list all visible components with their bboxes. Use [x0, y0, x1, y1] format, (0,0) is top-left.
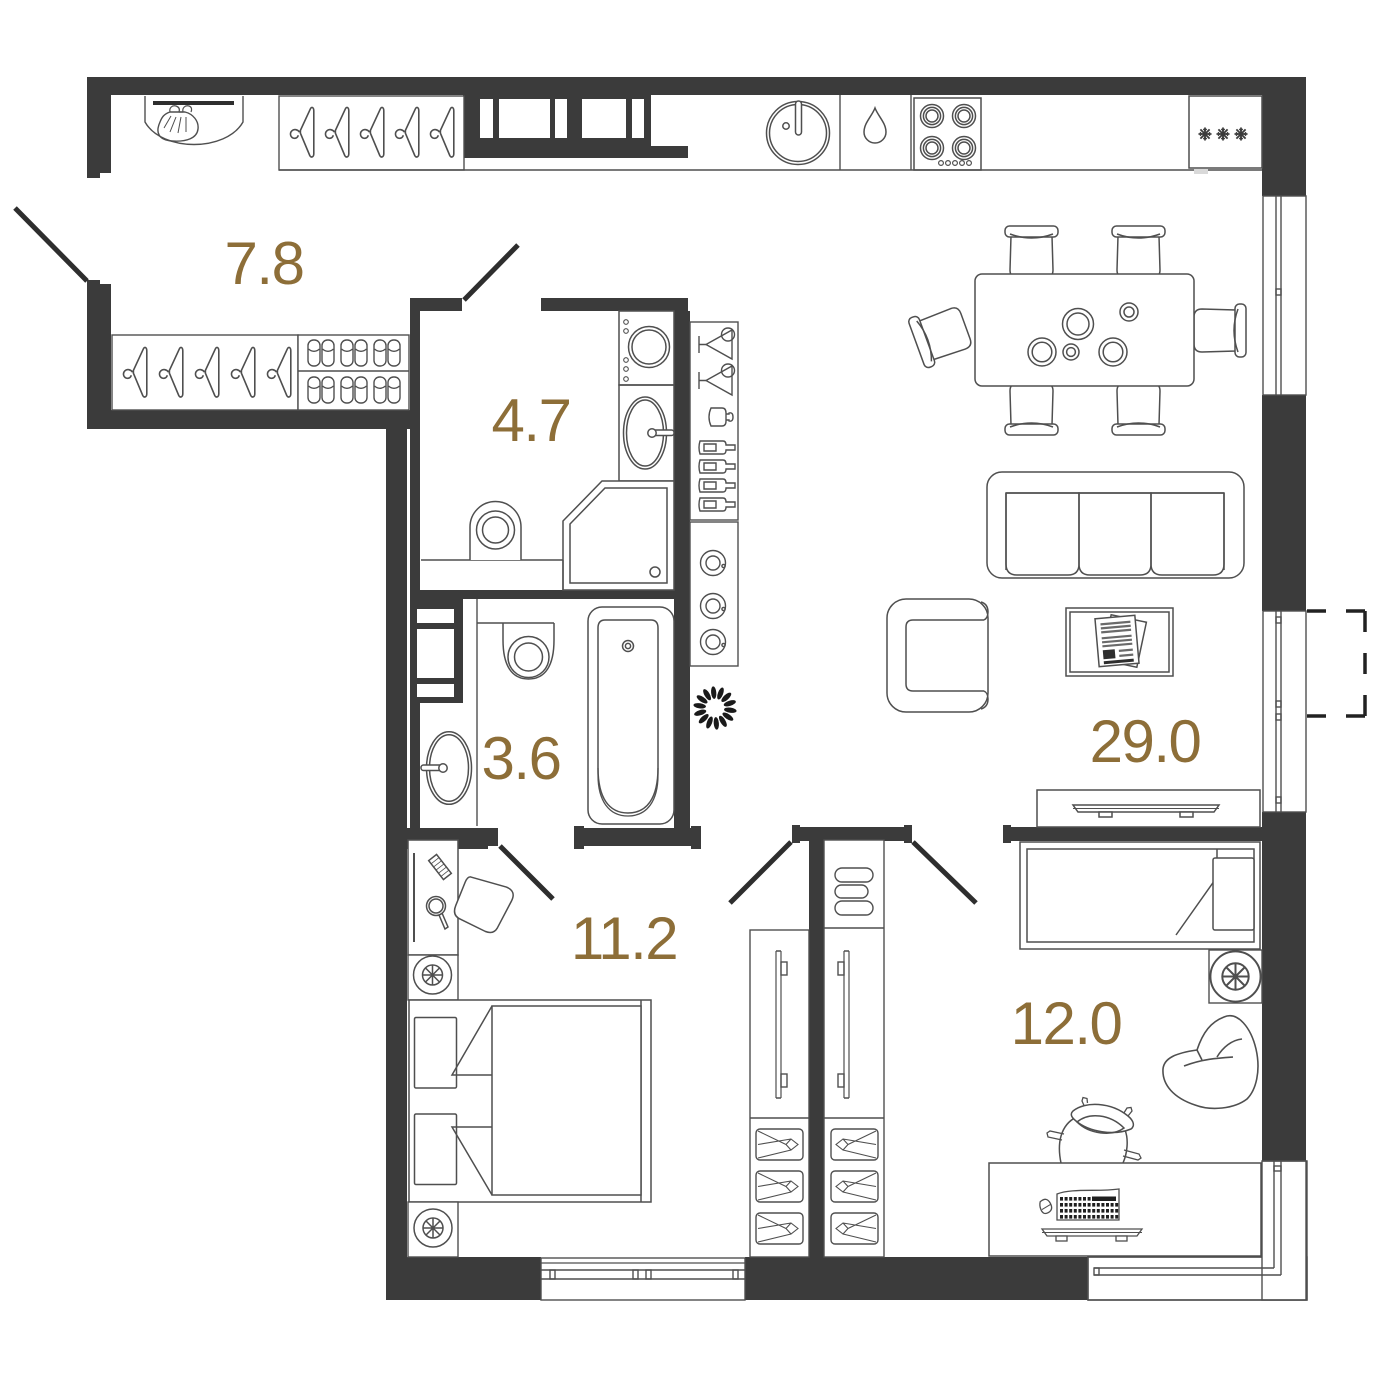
svg-text:12.0: 12.0 — [1011, 990, 1122, 1057]
svg-text:4.7: 4.7 — [492, 387, 571, 454]
svg-text:7.8: 7.8 — [225, 230, 304, 297]
svg-text:3.6: 3.6 — [482, 725, 561, 792]
svg-text:29.0: 29.0 — [1090, 708, 1201, 775]
svg-text:11.2: 11.2 — [571, 905, 677, 972]
